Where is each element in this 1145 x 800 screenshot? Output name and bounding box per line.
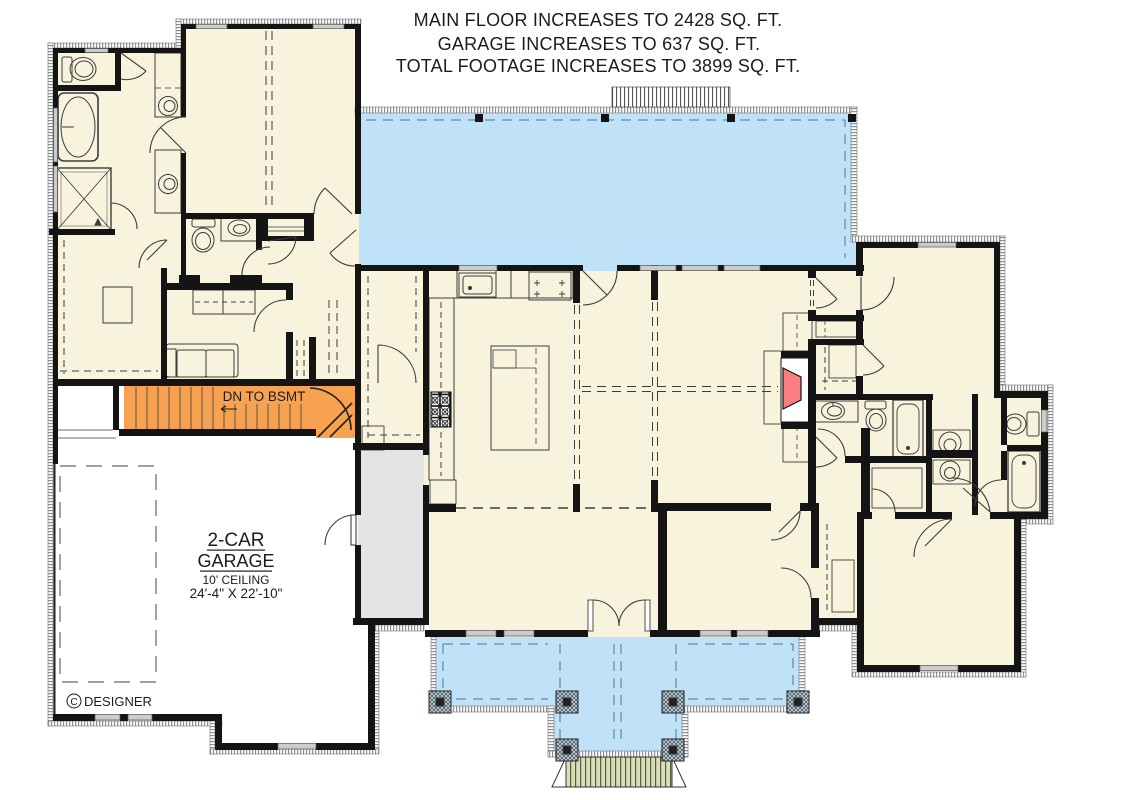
- svg-text:24'-4" X 22'-10": 24'-4" X 22'-10": [190, 586, 283, 601]
- svg-text:MAIN FLOOR INCREASES TO 2428 S: MAIN FLOOR INCREASES TO 2428 SQ. FT.: [414, 10, 783, 30]
- svg-text:C: C: [70, 697, 77, 708]
- svg-text:DESIGNER: DESIGNER: [84, 694, 152, 709]
- svg-text:GARAGE: GARAGE: [197, 551, 274, 571]
- svg-text:GARAGE INCREASES TO 637 SQ. FT: GARAGE INCREASES TO 637 SQ. FT.: [438, 34, 761, 54]
- svg-text:2-CAR: 2-CAR: [207, 530, 264, 551]
- svg-text:TOTAL FOOTAGE INCREASES TO 389: TOTAL FOOTAGE INCREASES TO 3899 SQ. FT.: [396, 56, 801, 76]
- svg-text:DN TO BSMT: DN TO BSMT: [223, 389, 306, 404]
- svg-text:10' CEILING: 10' CEILING: [203, 573, 270, 587]
